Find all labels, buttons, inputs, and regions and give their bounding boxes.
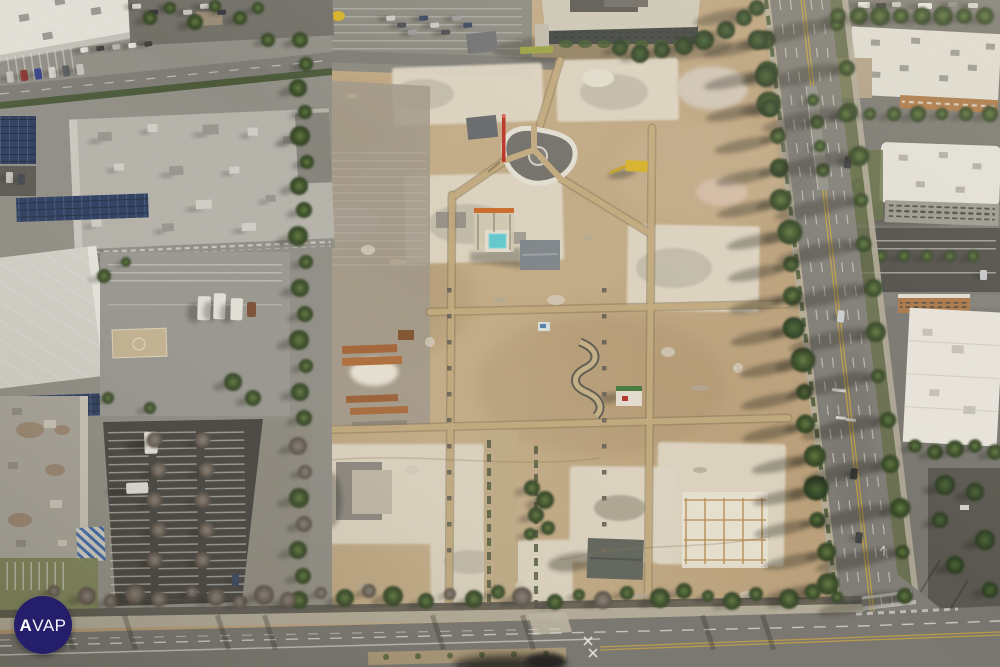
avap-logo-text: AVAP (19, 617, 66, 634)
avap-watermark-logo: AVAP (14, 596, 72, 654)
aerial-scene (0, 0, 1000, 667)
film-grain-highlight (0, 0, 1000, 667)
aerial-photo-demolition-site: AVAP (0, 0, 1000, 667)
logo-text-bold: A (19, 617, 32, 634)
light-and-grain-layer (0, 0, 1000, 667)
logo-text-light: VAP (32, 617, 66, 634)
